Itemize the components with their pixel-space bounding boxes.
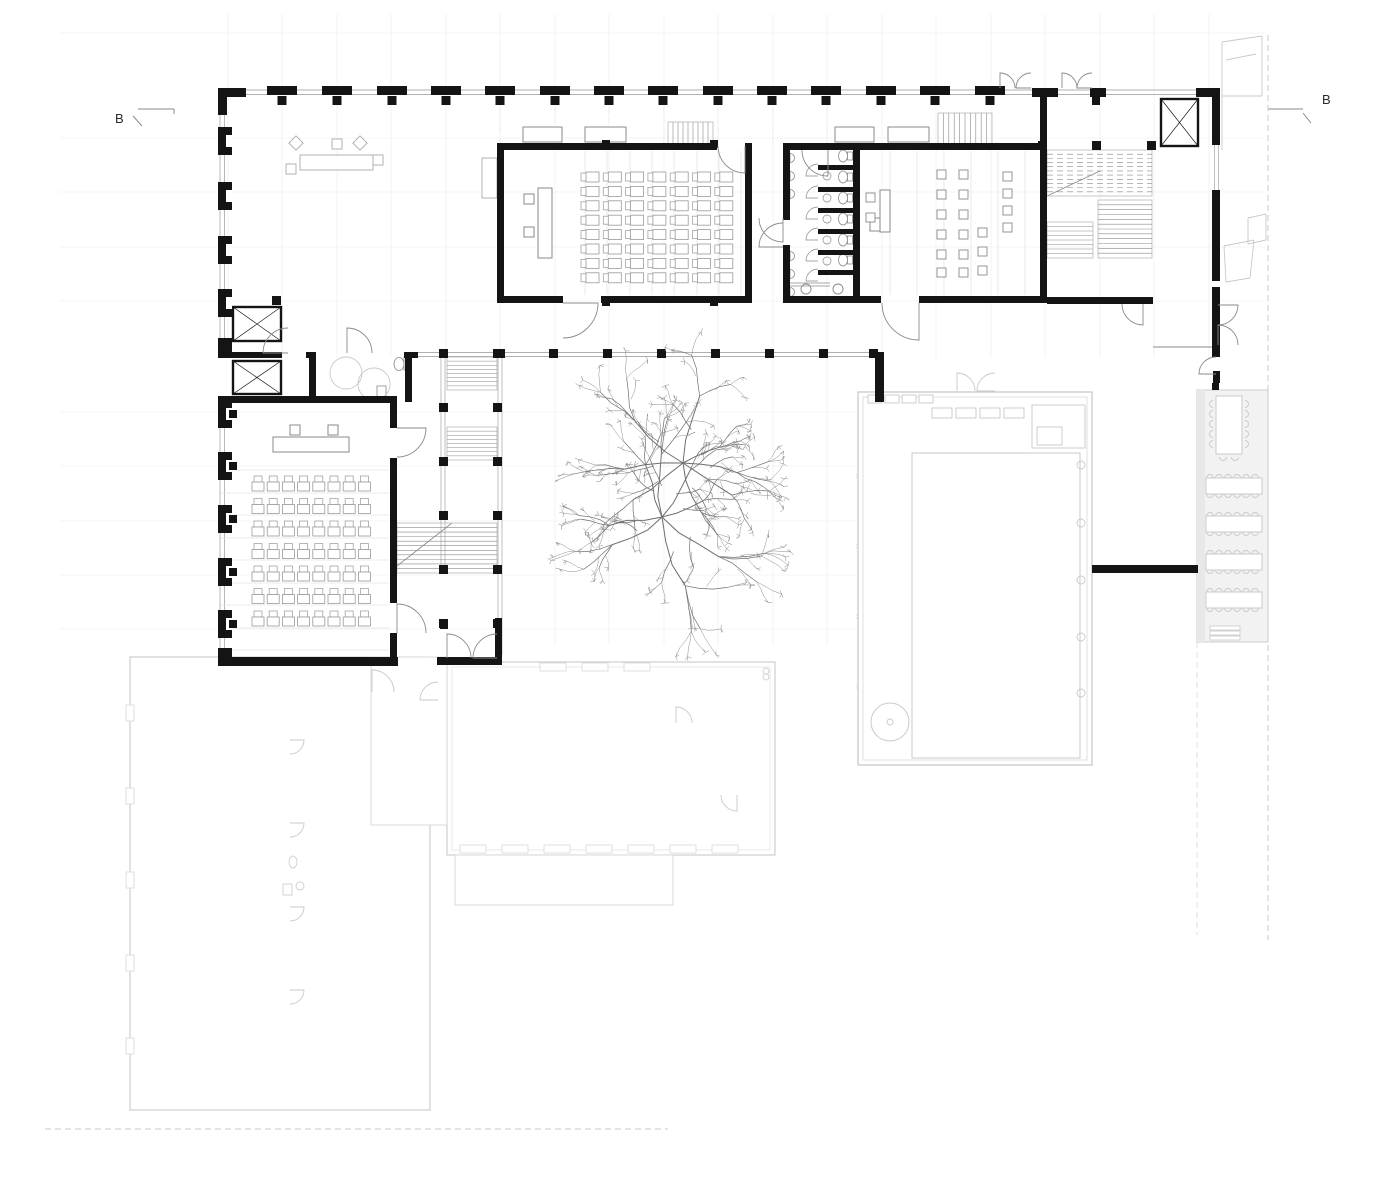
desk <box>653 258 666 268</box>
stool <box>937 170 946 179</box>
circle-mark <box>833 284 843 294</box>
tree-twig <box>682 402 683 406</box>
desk <box>358 572 370 581</box>
wall-segment <box>497 143 504 303</box>
tree-twig <box>780 594 782 598</box>
chair <box>330 476 338 482</box>
facade-pier <box>485 86 515 95</box>
desk <box>328 505 340 514</box>
tree-twig <box>757 555 759 558</box>
tree-branch <box>661 428 678 434</box>
tree-twig <box>558 524 562 526</box>
chair <box>330 499 338 505</box>
tree-twig <box>739 523 743 525</box>
outline <box>455 855 673 905</box>
colonnade-column <box>493 619 502 628</box>
tree-twig <box>594 394 598 395</box>
section-label-b-left: B <box>115 111 124 126</box>
door-arc <box>447 634 471 658</box>
tree-twig <box>747 498 750 500</box>
tree-twig <box>550 560 551 564</box>
facade-pier <box>648 86 678 95</box>
tree-twig <box>668 419 672 420</box>
colonnade-column <box>657 349 666 358</box>
tree-branch <box>764 553 788 565</box>
outline <box>544 845 570 853</box>
door-arc <box>1218 305 1238 325</box>
outline <box>1210 631 1240 635</box>
tree-branch <box>731 385 746 398</box>
tree-branch <box>719 556 762 559</box>
tree-twig <box>779 463 783 464</box>
facade-column <box>659 96 668 105</box>
chair <box>300 566 308 572</box>
circle-mark <box>801 284 811 294</box>
tree-twig <box>784 486 788 487</box>
desk <box>358 595 370 604</box>
tree-twig <box>561 510 563 513</box>
outline <box>452 667 770 850</box>
tree-twig <box>747 501 750 504</box>
outline <box>956 408 976 418</box>
chair <box>300 499 308 505</box>
tree-branch <box>752 467 767 468</box>
desk <box>267 505 279 514</box>
chair <box>269 499 277 505</box>
tree-twig <box>779 446 781 449</box>
tree-twig <box>748 485 750 488</box>
chair <box>345 544 353 550</box>
desk <box>328 550 340 559</box>
desk <box>675 258 688 268</box>
chair <box>315 521 323 527</box>
toilet <box>839 192 848 204</box>
chair <box>360 521 368 527</box>
tree-twig <box>562 503 563 507</box>
desk <box>282 595 294 604</box>
toilet <box>839 150 848 162</box>
tree-branch <box>599 567 603 580</box>
tree-twig <box>738 517 741 519</box>
desk <box>298 617 310 626</box>
facade-column <box>551 96 560 105</box>
outline <box>586 845 612 853</box>
desk <box>328 595 340 604</box>
chair <box>330 589 338 595</box>
tree-branch <box>732 488 744 499</box>
tree-branch <box>621 494 633 499</box>
desk <box>343 527 355 536</box>
tree-branch <box>644 437 645 465</box>
facade-column <box>388 96 397 105</box>
tree-branch <box>732 456 744 457</box>
tree-twig <box>746 501 747 505</box>
desk <box>358 527 370 536</box>
tree-branch <box>576 545 613 552</box>
tree-twig <box>560 506 564 507</box>
wall-segment <box>272 296 281 305</box>
chair <box>300 476 308 482</box>
facade-pier <box>757 86 787 95</box>
outline <box>919 395 933 403</box>
desk <box>698 258 711 268</box>
tree-twig <box>701 328 702 332</box>
tree-twig <box>639 436 642 439</box>
door-arc <box>1016 73 1031 88</box>
tree-twig <box>599 546 600 550</box>
tree-twig <box>737 534 740 536</box>
desk <box>267 595 279 604</box>
desk <box>298 572 310 581</box>
wall-segment <box>405 352 412 402</box>
plan-line <box>133 116 142 126</box>
desk <box>631 230 644 240</box>
facade-pier <box>866 86 896 95</box>
tree-twig <box>596 481 600 482</box>
colonnade-column <box>549 349 558 358</box>
tree-twig <box>639 498 640 502</box>
tree-twig <box>635 464 639 465</box>
tree-branch <box>650 446 659 460</box>
desk <box>343 482 355 491</box>
tree-twig <box>555 568 559 569</box>
wall-segment <box>919 296 1047 303</box>
tree-twig <box>644 523 646 527</box>
tree-branch <box>566 561 584 569</box>
chair <box>360 544 368 550</box>
tree-twig <box>725 543 728 546</box>
desk <box>252 572 264 581</box>
tree-branch <box>718 500 726 509</box>
outline <box>524 227 534 237</box>
plan-line <box>1224 246 1226 282</box>
wall-segment <box>818 270 857 275</box>
desk <box>313 595 325 604</box>
tree-twig <box>632 409 633 413</box>
pier-notch <box>226 297 232 309</box>
tree-twig <box>726 380 728 383</box>
tree-twig <box>726 549 729 551</box>
tree-branch <box>649 582 661 591</box>
outline <box>670 845 696 853</box>
section-label-b-right: B <box>1322 92 1331 107</box>
desk <box>720 215 733 225</box>
outline <box>585 127 626 142</box>
tree-twig <box>780 509 783 512</box>
desk <box>252 527 264 536</box>
tree-twig <box>617 419 621 421</box>
tree-branch <box>588 532 594 548</box>
tree-twig <box>705 429 706 433</box>
tree-twig <box>626 463 627 467</box>
desk <box>698 215 711 225</box>
colonnade-column <box>493 457 502 466</box>
wall-segment <box>218 88 227 115</box>
tree-branch <box>631 381 636 400</box>
plan-line <box>1226 278 1250 282</box>
tree-twig <box>683 357 684 361</box>
tree-branch <box>720 481 724 492</box>
outline <box>540 663 566 671</box>
facade-pier <box>267 86 297 95</box>
tree-twig <box>668 420 672 422</box>
tree-twig <box>681 406 683 410</box>
outline <box>712 845 738 853</box>
outline <box>332 139 342 149</box>
tree-twig <box>779 446 783 447</box>
tree-twig <box>725 450 727 453</box>
desk <box>328 617 340 626</box>
tree-twig <box>578 459 582 460</box>
toilet-tank <box>848 194 853 202</box>
tree-branch <box>704 480 717 501</box>
tree-twig <box>737 449 738 453</box>
tree-twig <box>578 460 579 464</box>
tree-twig <box>577 466 580 469</box>
tree-branch <box>731 377 744 384</box>
chair <box>360 589 368 595</box>
outline <box>1206 592 1262 608</box>
tree-branch <box>727 585 750 588</box>
tree-branch <box>584 511 595 521</box>
tree-twig <box>707 433 709 437</box>
tree-twig <box>629 461 632 464</box>
tree-twig <box>660 411 662 415</box>
tree-branch <box>634 516 646 523</box>
tree-branch <box>559 569 584 572</box>
door-arc <box>882 303 919 340</box>
wall-segment <box>1147 141 1156 150</box>
desk <box>358 550 370 559</box>
tree-branch <box>688 631 692 657</box>
stool <box>978 266 987 275</box>
urinal <box>790 252 795 261</box>
tree-twig <box>597 511 598 515</box>
stool <box>937 190 946 199</box>
desk <box>358 505 370 514</box>
tree-twig <box>782 594 784 598</box>
wall-segment <box>745 143 752 303</box>
outline <box>902 395 916 403</box>
chair <box>300 544 308 550</box>
desk <box>282 482 294 491</box>
tree-twig <box>739 448 743 450</box>
tree-twig <box>657 395 660 397</box>
tree-branch <box>562 519 581 525</box>
tree-twig <box>788 561 789 565</box>
tree-branch <box>737 426 752 431</box>
tree-branch <box>700 481 708 490</box>
desk <box>267 617 279 626</box>
toilet-tank <box>848 152 853 160</box>
tree-twig <box>784 544 787 547</box>
desk <box>631 186 644 196</box>
wall-segment <box>783 150 790 220</box>
desk <box>675 172 688 182</box>
facade-column <box>229 410 237 418</box>
chair <box>284 611 292 617</box>
chair <box>330 544 338 550</box>
tree-twig <box>576 384 579 386</box>
desk <box>720 258 733 268</box>
desk <box>675 186 688 196</box>
tree-twig <box>736 536 739 538</box>
chair <box>254 476 262 482</box>
wall-segment <box>1038 141 1047 150</box>
stool <box>959 230 968 239</box>
desk <box>653 273 666 283</box>
tree-twig <box>584 528 586 531</box>
tree-twig <box>610 424 613 426</box>
facade-column <box>822 96 831 105</box>
chair <box>269 566 277 572</box>
urinal <box>790 172 795 181</box>
tree-twig <box>550 557 554 558</box>
chair <box>315 499 323 505</box>
colonnade-column <box>439 457 448 466</box>
facade-column <box>278 96 287 105</box>
chair <box>315 611 323 617</box>
chair <box>269 544 277 550</box>
outline <box>300 155 373 170</box>
tree-twig <box>621 448 624 450</box>
desk <box>675 215 688 225</box>
tree-twig <box>563 504 567 506</box>
desk <box>328 527 340 536</box>
plan-line <box>1224 240 1254 246</box>
tree-twig <box>662 386 665 388</box>
tree-twig <box>748 481 751 483</box>
door-arc <box>802 150 828 176</box>
chair <box>254 589 262 595</box>
plan-line <box>1250 240 1254 278</box>
outline <box>1210 626 1240 630</box>
tree-twig <box>687 581 690 583</box>
facade-column <box>333 96 342 105</box>
tree-twig <box>749 532 753 533</box>
colonnade-column <box>819 349 828 358</box>
toilet-tank <box>848 256 853 264</box>
facade-pier <box>703 86 733 95</box>
desk <box>608 186 621 196</box>
outline <box>273 437 349 452</box>
stool <box>1003 172 1012 181</box>
chair <box>284 589 292 595</box>
desk <box>252 617 264 626</box>
stall-door-arc <box>806 228 818 240</box>
tree-twig <box>581 377 583 381</box>
tree-twig <box>633 377 636 380</box>
pier-notch <box>226 135 232 147</box>
wall-segment <box>1213 371 1220 383</box>
tree-twig <box>705 536 707 539</box>
stool <box>937 250 946 259</box>
stool <box>937 210 946 219</box>
tree-twig <box>580 380 583 383</box>
tree-branch <box>762 534 769 556</box>
tree-branch <box>634 532 635 549</box>
tree-twig <box>710 426 714 428</box>
tree-twig <box>617 421 621 422</box>
urinal <box>790 270 795 279</box>
toilet-tank <box>848 215 853 223</box>
desk <box>252 595 264 604</box>
facade-column <box>496 96 505 105</box>
outline <box>502 845 528 853</box>
stool <box>937 268 946 277</box>
chair <box>269 476 277 482</box>
chair <box>254 521 262 527</box>
wall-segment <box>818 187 857 192</box>
outline <box>523 127 562 142</box>
tree-branch <box>718 535 728 543</box>
tree-twig <box>660 414 664 415</box>
tree-twig <box>781 484 784 486</box>
door-arc <box>1000 73 1015 88</box>
tree-branch <box>718 535 727 549</box>
chair <box>360 566 368 572</box>
desk <box>252 505 264 514</box>
chair <box>345 476 353 482</box>
desk <box>313 550 325 559</box>
desk <box>653 201 666 211</box>
tree-twig <box>726 546 729 549</box>
tree-twig <box>702 652 705 655</box>
stool <box>1003 189 1012 198</box>
tree-branch <box>676 631 692 657</box>
desk <box>328 482 340 491</box>
door-arc <box>1218 325 1238 345</box>
tree-twig <box>701 332 702 336</box>
facade-column <box>229 620 237 628</box>
chair <box>300 521 308 527</box>
outline <box>1206 554 1262 570</box>
tree-twig <box>744 479 748 481</box>
tree-twig <box>714 426 715 430</box>
fixture <box>289 856 297 868</box>
tree-twig <box>646 523 650 524</box>
tree-branch <box>751 493 768 495</box>
stair-flight <box>1047 150 1152 196</box>
tree-branch <box>597 524 605 541</box>
facade-pier <box>377 86 407 95</box>
tree-branch <box>706 572 718 587</box>
toilet <box>839 213 848 225</box>
desk <box>298 527 310 536</box>
tree-twig <box>767 468 769 471</box>
door-arc <box>759 223 783 247</box>
tree-twig <box>612 528 615 530</box>
outline <box>880 190 890 232</box>
stool <box>1003 223 1012 232</box>
tree-twig <box>749 585 751 589</box>
desk <box>586 172 599 182</box>
tree-branch <box>578 460 596 465</box>
wall-segment <box>818 208 857 213</box>
desk <box>267 482 279 491</box>
stool <box>959 210 968 219</box>
stair-flight <box>668 122 713 145</box>
stool <box>959 268 968 277</box>
tree-twig <box>791 552 794 555</box>
accessible-toilet <box>394 358 404 371</box>
tree-twig <box>593 541 596 544</box>
tree-twig <box>563 560 567 561</box>
tree-branch <box>621 421 624 441</box>
stall-door-arc <box>806 269 818 281</box>
tree-branch <box>692 332 702 356</box>
desk <box>631 244 644 254</box>
